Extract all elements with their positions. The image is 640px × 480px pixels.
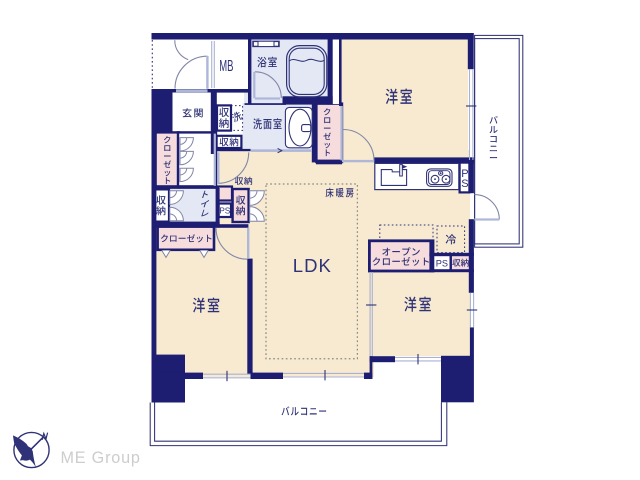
svg-text:MB: MB [219,58,233,75]
svg-text:S: S [461,178,468,190]
svg-text:PS: PS [219,206,230,215]
svg-text:PS: PS [436,259,448,269]
svg-text:LDK: LDK [293,255,332,276]
svg-text:ME Group: ME Group [61,449,141,467]
